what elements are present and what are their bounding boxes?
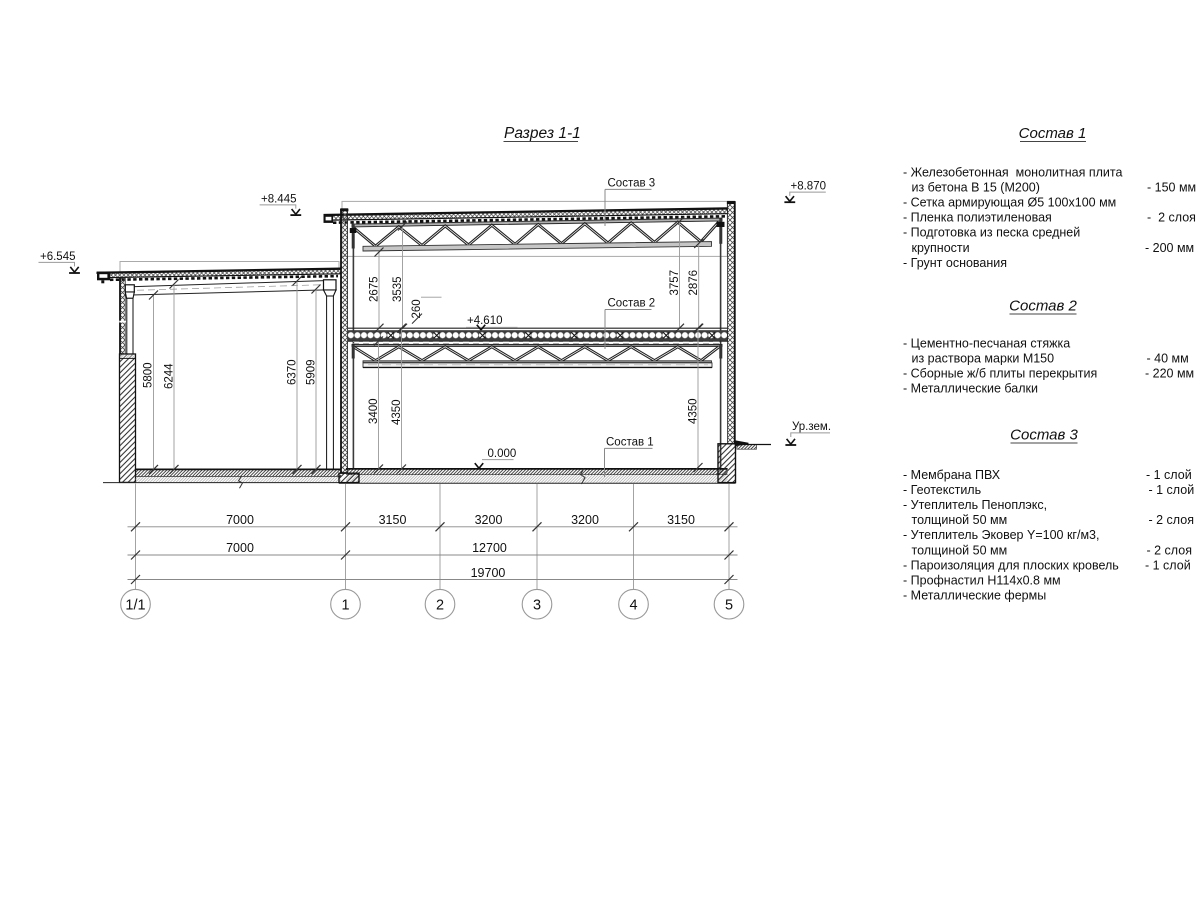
svg-text:- Подготовка из песка средней: - Подготовка из песка средней	[903, 226, 1080, 240]
svg-text:- Геотекстиль: - Геотекстиль	[903, 483, 981, 497]
svg-text:- 200 мм: - 200 мм	[1145, 241, 1194, 255]
svg-text:3400: 3400	[368, 398, 380, 424]
svg-text:- Профнастил Н114х0.8 мм: - Профнастил Н114х0.8 мм	[903, 574, 1061, 588]
svg-text:- Пароизоляция для плоских кро: - Пароизоляция для плоских кровель	[903, 558, 1119, 572]
svg-text:Состав 2: Состав 2	[1009, 298, 1077, 315]
svg-text:3: 3	[533, 597, 541, 613]
svg-text:- Мембрана ПВХ: - Мембрана ПВХ	[903, 468, 1001, 482]
svg-text:2876: 2876	[688, 270, 700, 296]
svg-text:19700: 19700	[471, 566, 506, 580]
svg-text:- Сборные ж/б плиты перекрытия: - Сборные ж/б плиты перекрытия	[903, 367, 1097, 381]
svg-text:- Грунт основания: - Грунт основания	[903, 256, 1007, 270]
svg-text:- 1 слой: - 1 слой	[1149, 483, 1195, 497]
svg-text:Ур.зем.: Ур.зем.	[792, 421, 831, 433]
svg-text:6244: 6244	[164, 363, 176, 389]
svg-text:Разрез 1-1: Разрез 1-1	[504, 125, 581, 142]
svg-text:толщиной 50 мм: толщиной 50 мм	[912, 543, 1008, 557]
svg-text:7000: 7000	[226, 541, 254, 555]
svg-text:- 2 слоя: - 2 слоя	[1147, 543, 1192, 557]
svg-text:- Пленка полиэтиленовая: - Пленка полиэтиленовая	[903, 211, 1052, 225]
svg-text:1: 1	[341, 597, 349, 613]
svg-text:крупности: крупности	[912, 241, 970, 255]
svg-text:3150: 3150	[667, 513, 695, 527]
svg-text:0.000: 0.000	[488, 448, 517, 460]
svg-text:из раствора марки М150: из раствора марки М150	[912, 351, 1055, 365]
svg-text:Состав 3: Состав 3	[1010, 427, 1078, 444]
svg-text:- 2 слоя: - 2 слоя	[1147, 211, 1196, 225]
svg-text:из бетона В 15 (М200): из бетона В 15 (М200)	[912, 180, 1040, 194]
svg-text:+8.445: +8.445	[261, 194, 297, 206]
svg-text:- Металлические фермы: - Металлические фермы	[903, 589, 1046, 603]
svg-text:4: 4	[629, 597, 637, 613]
svg-text:5909: 5909	[306, 359, 318, 385]
svg-text:3757: 3757	[669, 270, 681, 296]
svg-text:260: 260	[411, 299, 423, 318]
svg-text:- Металлические балки: - Металлические балки	[903, 382, 1038, 396]
svg-text:3150: 3150	[379, 513, 407, 527]
svg-text:3200: 3200	[571, 513, 599, 527]
svg-text:- Сетка армирующая Ø5 100х100: - Сетка армирующая Ø5 100х100 мм	[903, 196, 1116, 210]
svg-text:+6.545: +6.545	[40, 251, 76, 263]
svg-text:4350: 4350	[391, 399, 403, 425]
svg-text:- Утеплитель Эковер Y=100 кг/м: - Утеплитель Эковер Y=100 кг/м3,	[903, 528, 1099, 542]
svg-text:3535: 3535	[392, 276, 404, 302]
svg-text:2675: 2675	[369, 276, 381, 302]
svg-text:Состав 3: Состав 3	[608, 178, 656, 190]
svg-text:- 1 слой: - 1 слой	[1146, 468, 1192, 482]
svg-text:- Железобетонная монолитная п: - Железобетонная монолитная плита	[903, 165, 1122, 179]
svg-text:- 150 мм: - 150 мм	[1147, 180, 1196, 194]
svg-text:6370: 6370	[287, 359, 299, 385]
svg-text:- Утеплитель Пеноплэкс,: - Утеплитель Пеноплэкс,	[903, 498, 1047, 512]
svg-text:- 1 слой: - 1 слой	[1145, 558, 1191, 572]
svg-text:- 40 мм: - 40 мм	[1147, 351, 1189, 365]
svg-text:12700: 12700	[472, 541, 507, 555]
svg-text:Состав 2: Состав 2	[608, 298, 656, 310]
svg-text:Состав 1: Состав 1	[1019, 125, 1087, 142]
svg-text:5: 5	[725, 597, 733, 613]
svg-text:1/1: 1/1	[125, 597, 145, 613]
svg-text:7000: 7000	[226, 513, 254, 527]
svg-text:- Цементно-песчаная стяжка: - Цементно-песчаная стяжка	[903, 336, 1070, 350]
svg-text:- 220 мм: - 220 мм	[1145, 367, 1194, 381]
svg-text:Состав 1: Состав 1	[606, 437, 654, 449]
svg-text:3200: 3200	[475, 513, 503, 527]
svg-text:4350: 4350	[688, 398, 700, 424]
svg-text:- 2 слоя: - 2 слоя	[1149, 513, 1194, 527]
svg-text:5800: 5800	[143, 362, 155, 388]
svg-text:+8.870: +8.870	[791, 181, 827, 193]
svg-text:толщиной 50 мм: толщиной 50 мм	[912, 513, 1008, 527]
svg-text:2: 2	[436, 597, 444, 613]
